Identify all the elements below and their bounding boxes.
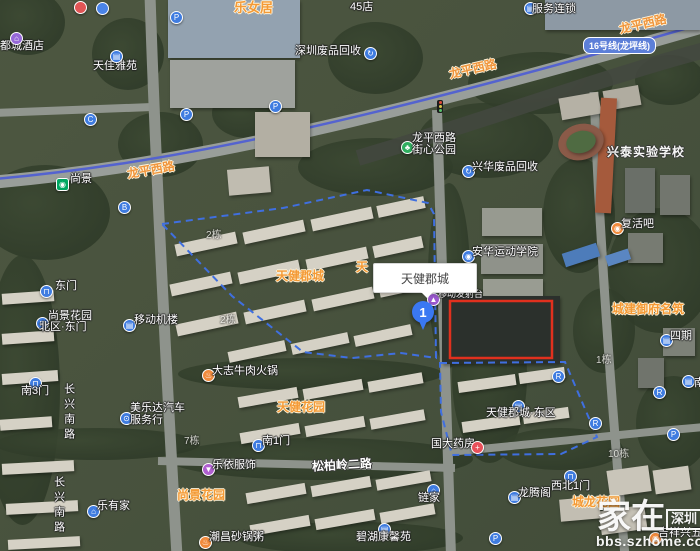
building-no-2b: 2栋 [220, 315, 236, 327]
label-xinghua-recycle[interactable]: 兴华废品回收 [472, 161, 538, 174]
poi-icon-partial-red[interactable] [74, 1, 87, 14]
entrance-r-icon-3[interactable]: R [589, 417, 602, 430]
label-leyi-fushi[interactable]: 乐依服饰 [212, 459, 256, 472]
parking-icon-5[interactable]: P [489, 532, 502, 545]
selected-marker-tail [419, 321, 427, 334]
hotel-icon[interactable]: ⌂ [10, 32, 23, 45]
label-shangjing-north-line2[interactable]: 北区·东门 [39, 321, 87, 334]
label-tianjian-juncheng[interactable]: 天健郡城 [276, 270, 324, 284]
road-label-changxing-south-1: 长兴南路 [62, 383, 75, 443]
label-bihu-kangxin[interactable]: 碧湖康馨苑 [356, 531, 411, 544]
selected-marker[interactable]: 1 [412, 301, 434, 323]
label-leyoujia[interactable]: 乐有家 [97, 500, 130, 513]
label-tianjian-garden[interactable]: 天健花园 [277, 401, 325, 415]
label-anhua-sports-academy[interactable]: 安华运动学院 [472, 246, 538, 259]
road-label-changxing-south-2: 长兴南路 [52, 476, 65, 536]
gate-icon-east[interactable]: ⊓ [40, 285, 53, 298]
label-park-line1[interactable]: 龙平西路 [412, 132, 456, 145]
label-south-gate-1[interactable]: 南1门 [262, 435, 290, 448]
building-icon-tianjia[interactable]: ▤ [110, 50, 123, 63]
parking-icon-3[interactable]: P [269, 100, 282, 113]
label-siqi[interactable]: 四期 [670, 330, 692, 343]
label-meileda-line2[interactable]: 服务行 [130, 414, 163, 427]
recycle-icon-1[interactable]: ↻ [364, 47, 377, 60]
label-shenzhen-recycle[interactable]: 深圳废品回收 [295, 45, 361, 58]
label-chaochang-congee[interactable]: 潮昌砂锅粥 [209, 531, 264, 544]
labels-layer: 都城酒店⌂天佳雅苑▤乐女居45店▤服务连锁深圳废品回收↻PPPPPCBRRR◉尚… [0, 0, 700, 551]
parking-icon-1[interactable]: P [170, 11, 183, 24]
exit-c-icon[interactable]: C [84, 113, 97, 126]
satellite-map[interactable]: 16号线(龙坪线) 都城酒店⌂天佳雅苑▤乐女居45店▤服务连锁深圳废品回收↻PP… [0, 0, 700, 551]
watermark-badge: 深圳 [666, 509, 700, 530]
building-no-7: 7栋 [184, 436, 200, 448]
poi-icon-partial-blue[interactable] [96, 2, 109, 15]
entrance-r-icon-2[interactable]: R [653, 386, 666, 399]
map-popup[interactable]: 天健郡城 [373, 263, 477, 293]
road-label-longping-west-3: 龙平西路 [618, 13, 668, 37]
label-lenvju[interactable]: 乐女居 [234, 1, 273, 16]
label-xingtai-school[interactable]: 兴泰实验学校 [607, 146, 685, 160]
label-lianjia[interactable]: 链家 [418, 492, 440, 505]
label-longtengge[interactable]: 龙腾阁 [518, 487, 551, 500]
label-edge-partial: 南 [694, 377, 700, 390]
road-label-longping-west-2: 龙平西路 [448, 58, 498, 82]
label-fuwu-liansuo[interactable]: 服务连锁 [532, 3, 576, 16]
watermark-brand: 家在 [597, 498, 665, 537]
label-park-line2[interactable]: 街心公园 [412, 144, 456, 157]
watermark-url: bbs.szhome.com [596, 533, 700, 549]
road-label-longping-west-1: 龙平西路 [126, 160, 176, 182]
label-partial-tian: 天 [356, 261, 368, 275]
building-no-1: 1栋 [596, 355, 612, 367]
exit-b-icon[interactable]: B [118, 201, 131, 214]
label-chengjian-yufu[interactable]: 城建御府名筑 [612, 303, 684, 317]
road-label-songbailing-2nd: 松柏岭二路 [312, 457, 373, 474]
building-no-2a: 2栋 [206, 230, 222, 242]
label-45-store-partial[interactable]: 45店 [350, 1, 373, 14]
metro-station-icon[interactable]: ◉ [56, 178, 69, 191]
parking-icon-2[interactable]: P [180, 108, 193, 121]
label-shangjing-garden[interactable]: 尚景花园 [177, 489, 225, 503]
label-yidong-jilou[interactable]: 移动机楼 [134, 314, 178, 327]
label-shangjing-station[interactable]: 尚景 [70, 173, 92, 186]
label-south-gate-3[interactable]: 南3门 [21, 385, 49, 398]
entrance-r-icon-1[interactable]: R [552, 370, 565, 383]
building-no-10: 10栋 [608, 449, 629, 461]
label-tianjian-east[interactable]: 天健郡城·东区 [486, 407, 556, 420]
label-northwest-gate-1[interactable]: 西北1门 [551, 480, 590, 493]
label-dazhi-beef-hotpot[interactable]: 大志牛肉火锅 [212, 365, 278, 378]
label-fuhuoba[interactable]: 复活吧 [621, 218, 654, 231]
pharmacy-icon-guoda[interactable]: + [471, 441, 484, 454]
popup-place-name: 天健郡城 [401, 270, 449, 287]
parking-icon-4[interactable]: P [667, 428, 680, 441]
label-east-gate[interactable]: 东门 [55, 280, 77, 293]
label-meileda-line1[interactable]: 美乐达汽车 [130, 402, 185, 415]
label-guoda-pharmacy[interactable]: 国大药房 [431, 438, 475, 451]
